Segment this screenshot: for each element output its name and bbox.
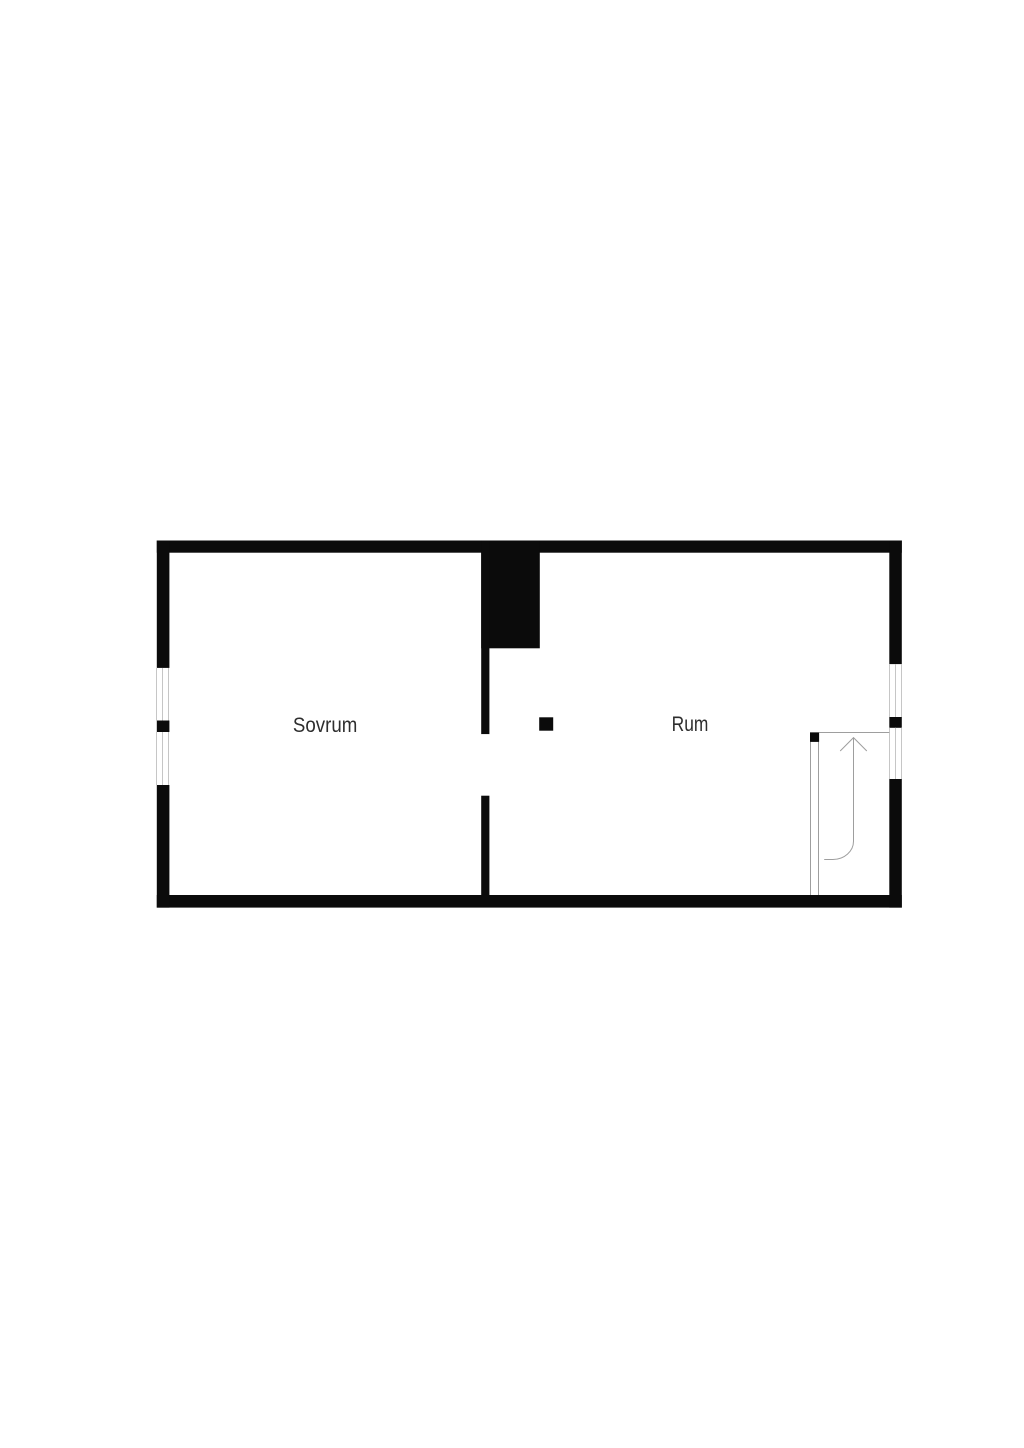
svg-text:Rum: Rum — [672, 712, 709, 736]
svg-text:Sovrum: Sovrum — [293, 713, 357, 737]
